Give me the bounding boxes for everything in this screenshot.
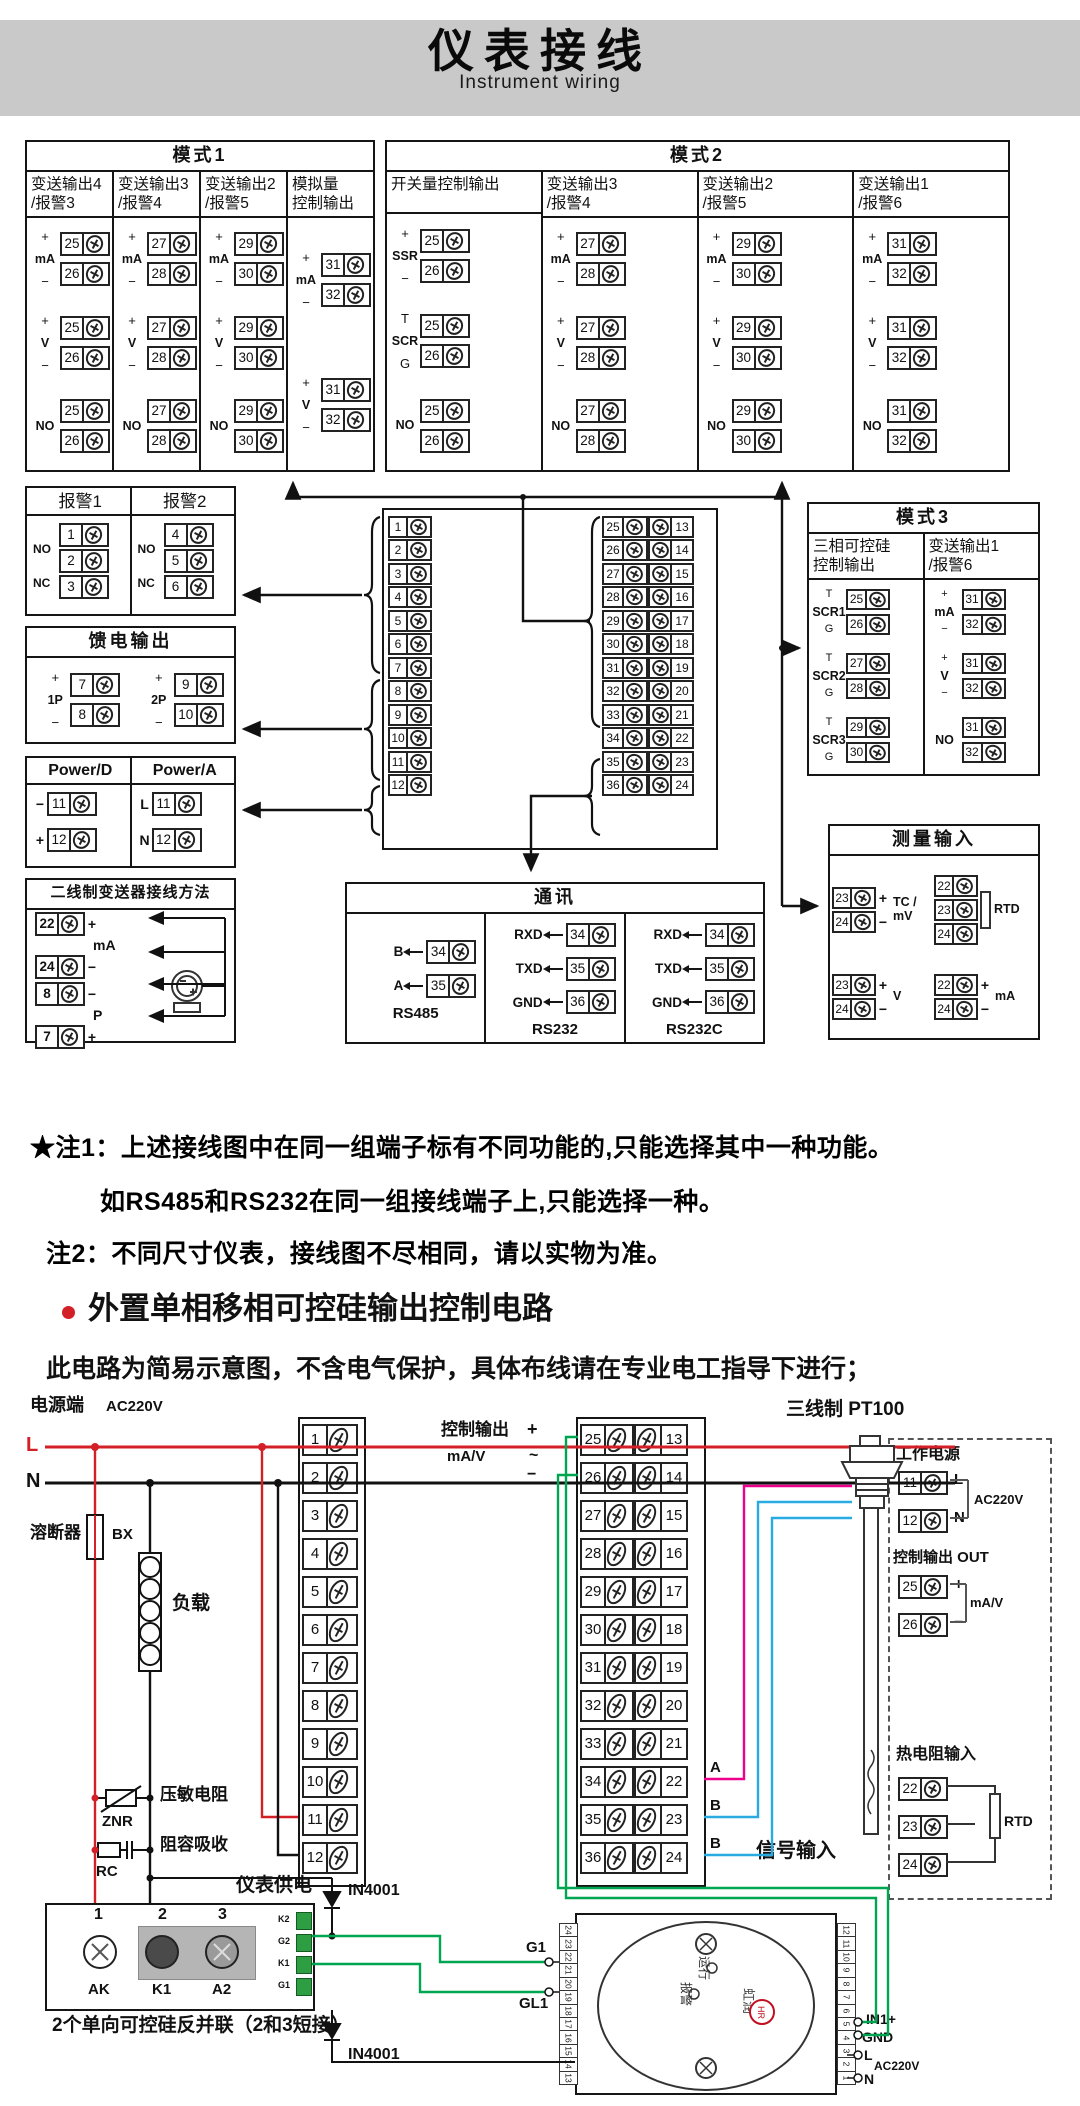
- fuse-label: 溶断器: [30, 1524, 81, 1543]
- signal-labels: +mA−: [291, 251, 321, 309]
- terminal-number: 26: [420, 429, 444, 453]
- screw-icon: [756, 399, 782, 423]
- terminal-number: 8: [302, 1690, 328, 1722]
- terminal-pair: 2526: [420, 311, 470, 371]
- device-pin: 3: [838, 2045, 855, 2058]
- terminal-number: 32: [602, 680, 624, 702]
- column-header: 变送输出4/报警3: [27, 172, 112, 218]
- screw-icon: [590, 990, 616, 1014]
- pin-number: 9: [841, 1968, 851, 1973]
- screw-icon: [624, 680, 648, 702]
- screw-icon: [444, 399, 470, 423]
- polarity-label: +: [33, 832, 47, 848]
- signal-labels: +mA−: [928, 589, 962, 635]
- terminal: 30: [732, 262, 782, 286]
- polarity-bottom: −: [713, 359, 721, 372]
- screw-icon: [345, 378, 371, 402]
- screw-icon: [983, 614, 1006, 635]
- terminal: 10: [388, 727, 432, 749]
- dual-terminal-row: 3523: [602, 751, 694, 773]
- polarity-top: T: [401, 312, 409, 325]
- terminal: 30: [732, 346, 782, 370]
- terminal: 1: [59, 523, 109, 547]
- terminal-number: 30: [732, 262, 756, 286]
- screw-icon: [648, 680, 672, 702]
- pin-number: 13: [564, 2073, 574, 2082]
- device-pin: 11: [838, 1937, 855, 1950]
- screw-icon: [648, 727, 672, 749]
- terminal-number: 28: [580, 1538, 606, 1570]
- terminal-number: 28: [846, 678, 867, 699]
- header-line: 开关量控制输出: [391, 175, 541, 194]
- terminal: 6: [164, 575, 214, 599]
- terminal-number: 29: [732, 399, 756, 423]
- comm-standard-label: RS485: [349, 1005, 482, 1022]
- screw-icon: [258, 429, 284, 453]
- terminal: 22: [35, 912, 85, 936]
- terminal: 4: [388, 586, 432, 608]
- terminal: 32: [962, 614, 1006, 635]
- terminal-number: 33: [580, 1728, 606, 1760]
- polarity-top: +: [557, 230, 565, 243]
- gate-pin-block: [296, 1978, 312, 1996]
- output-group: +2P−910: [131, 670, 235, 730]
- terminal-number: 9: [174, 673, 198, 697]
- screw-icon: [59, 982, 85, 1006]
- header-line: /报警6: [929, 556, 1039, 575]
- output-group: +mA−3132: [288, 218, 373, 343]
- dev-ac-label: AC220V: [874, 2060, 919, 2073]
- pin-number: 12: [842, 1925, 852, 1934]
- screw-icon: [444, 229, 470, 253]
- polarity-top: +: [868, 230, 876, 243]
- polarity-top: +: [128, 230, 136, 243]
- header-line: /报警4: [547, 194, 697, 213]
- signal-type-label: mA: [862, 253, 882, 266]
- alarm-column: 报警1NONC123: [27, 488, 132, 614]
- device-pin: 13: [560, 2072, 577, 2084]
- output-group: +mA−2728: [114, 218, 199, 301]
- terminal-number: 7: [388, 657, 408, 679]
- twowire-row: 7+: [27, 1023, 234, 1050]
- screw-icon: [624, 633, 648, 655]
- terminal-number: 10: [174, 703, 198, 727]
- header-line: 变送输出3: [547, 175, 697, 194]
- terminal: 25: [420, 314, 470, 338]
- plus-label: +: [527, 1420, 538, 1440]
- terminal-number: 23: [662, 1804, 688, 1836]
- dual-terminal-row: 3422: [602, 727, 694, 749]
- screw-icon: [83, 549, 109, 573]
- comm-standard-label: RS232C: [628, 1021, 761, 1038]
- screw-icon: [59, 912, 85, 936]
- pin-number: 11: [841, 1939, 851, 1948]
- screw-icon: [634, 1538, 662, 1570]
- terminal-number: 22: [898, 1777, 922, 1801]
- polarity-label: +: [85, 1029, 99, 1045]
- terminal-number: 4: [302, 1538, 328, 1570]
- terminal-number: 28: [576, 429, 600, 453]
- screw-icon: [756, 346, 782, 370]
- pt100-label: 三线制 PT100: [786, 1400, 904, 1421]
- polarity-bottom: −: [401, 272, 409, 285]
- terminal-number: 1: [59, 523, 83, 547]
- polarity-label: L: [138, 796, 152, 812]
- signal-labels: TSCR1G: [812, 589, 846, 635]
- terminal-number: 28: [147, 262, 171, 286]
- terminal: 29: [234, 399, 284, 423]
- terminal-number: 16: [662, 1538, 688, 1570]
- polarity-bottom: −: [302, 296, 310, 309]
- terminal-pair: 2728: [147, 229, 197, 289]
- output-column: 变送输出1/报警6+mA−3132+V−3132NO3132: [925, 534, 1039, 774]
- pin-number: 15: [564, 2046, 574, 2055]
- terminal: 31: [962, 653, 1006, 674]
- terminal-number: 9: [388, 704, 408, 726]
- panel-terminal: 12: [898, 1509, 948, 1533]
- wire-b2-label: B: [710, 1836, 721, 1853]
- device-pin: 4: [838, 2031, 855, 2044]
- alarm-contacts: NONC: [31, 522, 59, 612]
- screw-icon: [450, 974, 476, 998]
- terminal: 34: [426, 940, 476, 964]
- terminal-number: 23: [898, 1815, 922, 1839]
- terminal: 24: [934, 923, 978, 945]
- polarity-bottom: −: [557, 275, 565, 288]
- screw-icon: [94, 703, 120, 727]
- terminal-pair: 2930: [732, 396, 782, 456]
- dual-terminal-row: 2816: [580, 1538, 702, 1570]
- gate-pin-block: [296, 1912, 312, 1930]
- dev-l-label: L: [864, 2048, 873, 2063]
- input-type-label: RTD: [994, 903, 1024, 917]
- terminal-pair: 3132: [962, 715, 1006, 765]
- terminal-number: 16: [672, 586, 694, 608]
- screw-icon: [328, 1766, 358, 1798]
- screw-icon: [600, 399, 626, 423]
- twowire-title: 二线制变送器接线方法: [27, 880, 234, 910]
- twowire-row: 22+: [27, 910, 234, 937]
- gl1-label: GL1: [519, 1996, 548, 2013]
- terminal-number: 20: [672, 680, 694, 702]
- terminal-number: 4: [164, 523, 188, 547]
- terminal-number: 36: [566, 990, 590, 1014]
- signal-type-label: 2P: [151, 694, 166, 707]
- terminal-number: 22: [672, 727, 694, 749]
- output-group: +1P−78: [27, 670, 131, 730]
- terminal: 32: [962, 742, 1006, 763]
- device-pin: 6: [838, 2005, 855, 2018]
- terminal-number: 2: [59, 549, 83, 573]
- screw-icon: [911, 399, 937, 423]
- terminal-number: 29: [732, 316, 756, 340]
- comm-standard-label: RS232: [488, 1021, 621, 1038]
- load-label: 负载: [172, 1594, 210, 1615]
- terminal-number: 36: [705, 990, 729, 1014]
- screw-icon: [922, 1471, 948, 1495]
- terminal-pair: 2930: [234, 396, 284, 456]
- header-line: 控制输出: [292, 194, 373, 213]
- trigger-device-box: [575, 1913, 837, 2095]
- gate-wires: [312, 1936, 545, 1992]
- wire-arrow-icon: [407, 985, 423, 987]
- screw-icon: [444, 314, 470, 338]
- terminal-number: 30: [732, 429, 756, 453]
- screw-icon: [188, 523, 214, 547]
- screw-icon: [606, 1842, 634, 1874]
- signal-labels: NO: [204, 397, 234, 455]
- terminal: 35: [566, 957, 616, 981]
- screw-icon: [84, 346, 110, 370]
- polarity-top: +: [557, 314, 565, 327]
- terminal-number: 6: [388, 633, 408, 655]
- screw-icon: [852, 911, 876, 933]
- terminal: 35: [705, 957, 755, 981]
- signal-type-label: SCR2: [812, 670, 845, 683]
- terminal: 27: [147, 232, 197, 256]
- terminal: 12: [302, 1842, 362, 1874]
- screw-icon: [954, 899, 978, 921]
- power-column: Power/AL11N12: [132, 758, 235, 866]
- output-group: +mA−3132: [854, 218, 1008, 301]
- terminal: 11: [388, 751, 432, 773]
- output-group: NO2526: [27, 385, 112, 468]
- output-group: +V−3132: [854, 301, 1008, 384]
- terminal-number: 22: [35, 912, 59, 936]
- terminal-number: 31: [962, 717, 983, 738]
- terminal: 3: [59, 575, 109, 599]
- pin-number: 7: [841, 1995, 851, 2000]
- terminal: 26: [60, 262, 110, 286]
- gate-pin-block: [296, 1956, 312, 1974]
- device-pin: 5: [838, 2018, 855, 2031]
- in1-label: IN1+: [866, 2012, 896, 2027]
- nc-contact-label: NC: [138, 576, 155, 590]
- terminal-number: 32: [321, 283, 345, 307]
- panel-terminal: 25: [898, 1575, 948, 1599]
- output-group: +V−3132: [288, 343, 373, 468]
- diode-upper-label: IN4001: [348, 1882, 400, 1900]
- screw-icon: [258, 316, 284, 340]
- polarity-bottom: −: [128, 275, 136, 288]
- screw-icon: [954, 974, 978, 996]
- terminal-pair: 3132: [887, 313, 937, 373]
- terminal: 6: [388, 633, 432, 655]
- terminal-number: 31: [887, 316, 911, 340]
- screw-icon: [624, 563, 648, 585]
- header-line: /报警5: [205, 194, 286, 213]
- terminal-number: 31: [962, 589, 983, 610]
- terminal-number: 3: [302, 1500, 328, 1532]
- output-group: NO2526: [387, 383, 541, 468]
- screw-icon: [345, 283, 371, 307]
- output-column: 三相可控硅控制输出TSCR1G2526TSCR2G2728TSCR3G2930: [809, 534, 925, 774]
- terminal: 9: [388, 704, 432, 726]
- no-contact-label: NO: [33, 542, 51, 556]
- measure-input-box: 测量输入23+24−TC / mV222324RTD23+24−V22+24−m…: [828, 824, 1040, 1040]
- device-pin: 16: [560, 2031, 577, 2044]
- screw-icon: [408, 610, 432, 632]
- line-l-label: L: [26, 1434, 38, 1456]
- comm-title: 通讯: [347, 884, 763, 914]
- signal-type-label: NO: [123, 420, 142, 433]
- device-pin: 18: [560, 2005, 577, 2018]
- screw-icon: [328, 1538, 358, 1570]
- mode-columns: 变送输出4/报警3+mA−2526+V−2526NO2526变送输出3/报警4+…: [27, 172, 373, 470]
- terminal-number: 29: [732, 232, 756, 256]
- terminal: 8: [35, 982, 85, 1006]
- line-n-label: N: [26, 1470, 40, 1492]
- terminal: 32: [887, 346, 937, 370]
- column-header: 开关量控制输出: [387, 172, 541, 214]
- terminal-number: 1: [388, 516, 408, 538]
- wire-a-label: A: [710, 1760, 721, 1777]
- terminal: 8: [388, 680, 432, 702]
- terminal-number: 31: [321, 253, 345, 277]
- measure-group: 23+24−V: [832, 959, 934, 1034]
- terminal: 26: [60, 346, 110, 370]
- polarity-top: +: [941, 589, 947, 600]
- wire-arrow-icon: [407, 951, 423, 953]
- polarity-label: −: [978, 1001, 992, 1017]
- terminal: 29: [234, 316, 284, 340]
- terminal: 12: [152, 828, 202, 852]
- terminal: 2: [388, 539, 432, 561]
- screw-icon: [171, 232, 197, 256]
- pin-number: 4: [841, 2035, 851, 2040]
- screw-icon: [634, 1500, 662, 1532]
- terminal-number: 11: [388, 751, 408, 773]
- panel-power-title: 工作电源: [896, 1446, 960, 1464]
- screw-icon: [328, 1842, 358, 1874]
- screw-icon: [84, 316, 110, 340]
- terminal: 32: [321, 408, 371, 432]
- terminal: 28: [147, 346, 197, 370]
- terminal-number: 2: [388, 539, 408, 561]
- bullet-icon: [62, 1306, 75, 1319]
- column-header: 模拟量控制输出: [288, 172, 373, 218]
- terminal-pair: 2728: [576, 396, 626, 456]
- header-line: 变送输出4: [31, 175, 112, 194]
- screw-icon: [408, 680, 432, 702]
- scr-terminal1-number: 1: [94, 1906, 103, 1924]
- output-group: +V−2930: [201, 301, 286, 384]
- terminal: 35: [426, 974, 476, 998]
- dual-terminal-row: 2715: [580, 1500, 702, 1532]
- communication-box: 通讯B34A35RS485RXD34TXD35GND36RS232RXD34TX…: [345, 882, 765, 1044]
- screw-icon: [729, 957, 755, 981]
- output-group: TSCR2G2728: [809, 644, 923, 708]
- screw-icon: [84, 262, 110, 286]
- screw-icon: [648, 516, 672, 538]
- signal-labels: +V−: [546, 314, 576, 372]
- signal-type-label: NO: [551, 420, 570, 433]
- rc-snubber-label: 阻容吸收: [160, 1836, 228, 1855]
- pin-number: 3: [841, 2049, 851, 2054]
- bottom-strip-left: 123456789101112: [298, 1417, 366, 1887]
- output-group: NO2728: [543, 385, 697, 468]
- pin-number: 21: [564, 1966, 574, 1975]
- screw-icon: [922, 1777, 948, 1801]
- polarity-bottom: −: [302, 421, 310, 434]
- screw-icon: [408, 516, 432, 538]
- terminal: 28: [576, 429, 626, 453]
- screw-icon: [922, 1509, 948, 1533]
- terminal-number: 18: [662, 1614, 688, 1646]
- wire-arrow-icon: [686, 968, 702, 970]
- terminal-pair: 910: [174, 670, 224, 730]
- signal-labels: +V−: [702, 314, 732, 372]
- terminal-number: 25: [420, 229, 444, 253]
- alarm-columns: 报警1NONC123报警2NONC456: [27, 488, 234, 614]
- signal-type-label: SSR: [392, 250, 418, 263]
- terminal-number: 26: [846, 614, 867, 635]
- unit-label: P: [27, 1007, 234, 1023]
- terminal: 25: [846, 589, 890, 610]
- terminal: 2: [302, 1462, 362, 1494]
- comm-column: RXD34TXD35GND36RS232: [486, 914, 625, 1042]
- screw-icon: [606, 1462, 634, 1494]
- terminal: 4: [302, 1538, 362, 1570]
- output-column: 变送输出2/报警5+mA−2930+V−2930NO2930: [699, 172, 855, 470]
- terminal-number: 27: [147, 232, 171, 256]
- feed-output-box: 馈电输出+1P−78+2P−910: [25, 626, 236, 744]
- mode-title: 模式3: [809, 504, 1038, 534]
- screw-icon: [648, 610, 672, 632]
- polarity-label: −: [85, 986, 99, 1002]
- terminal-number: 11: [898, 1471, 922, 1495]
- terminal: 9: [174, 673, 224, 697]
- dual-terminal-row: 3119: [602, 657, 694, 679]
- screw-icon: [634, 1462, 662, 1494]
- screw-icon: [258, 262, 284, 286]
- terminal-number: 27: [602, 563, 624, 585]
- screw-icon: [83, 523, 109, 547]
- screw-icon: [71, 828, 97, 852]
- screw-icon: [188, 575, 214, 599]
- signal-labels: NO: [857, 397, 887, 455]
- screw-icon: [328, 1690, 358, 1722]
- terminal-pair: 2728: [147, 396, 197, 456]
- terminal: 11: [302, 1804, 362, 1836]
- terminal-number: 3: [59, 575, 83, 599]
- screw-icon: [606, 1538, 634, 1570]
- terminal-number: 25: [580, 1424, 606, 1456]
- terminal: 23: [934, 899, 978, 921]
- screw-icon: [634, 1690, 662, 1722]
- terminal-number: 28: [147, 346, 171, 370]
- column-header: 变送输出1/报警6: [925, 534, 1039, 580]
- screw-icon: [922, 1853, 948, 1877]
- device-pin: 21: [560, 1964, 577, 1977]
- signal-type-label: V: [712, 337, 720, 350]
- terminal: 11: [152, 792, 202, 816]
- screw-icon: [408, 704, 432, 726]
- dual-terminal-row: 3624: [580, 1842, 702, 1874]
- terminal-number: 6: [302, 1614, 328, 1646]
- output-group: NO2930: [699, 385, 853, 468]
- signal-type-label: V: [868, 337, 876, 350]
- dual-terminal-row: 2917: [602, 610, 694, 632]
- panel-terminal: 26: [898, 1613, 948, 1637]
- terminal-number: 27: [147, 316, 171, 340]
- terminal-number: 23: [934, 899, 954, 921]
- terminal: 24: [832, 998, 876, 1020]
- center-left-strip: 123456789101112: [388, 514, 432, 798]
- terminal-number: 11: [47, 792, 71, 816]
- measure-group: 22+24−mA: [934, 959, 1036, 1034]
- mode2-box: 模式2开关量控制输出+SSR−2526TSCRG2526NO2526变送输出3/…: [385, 140, 1010, 472]
